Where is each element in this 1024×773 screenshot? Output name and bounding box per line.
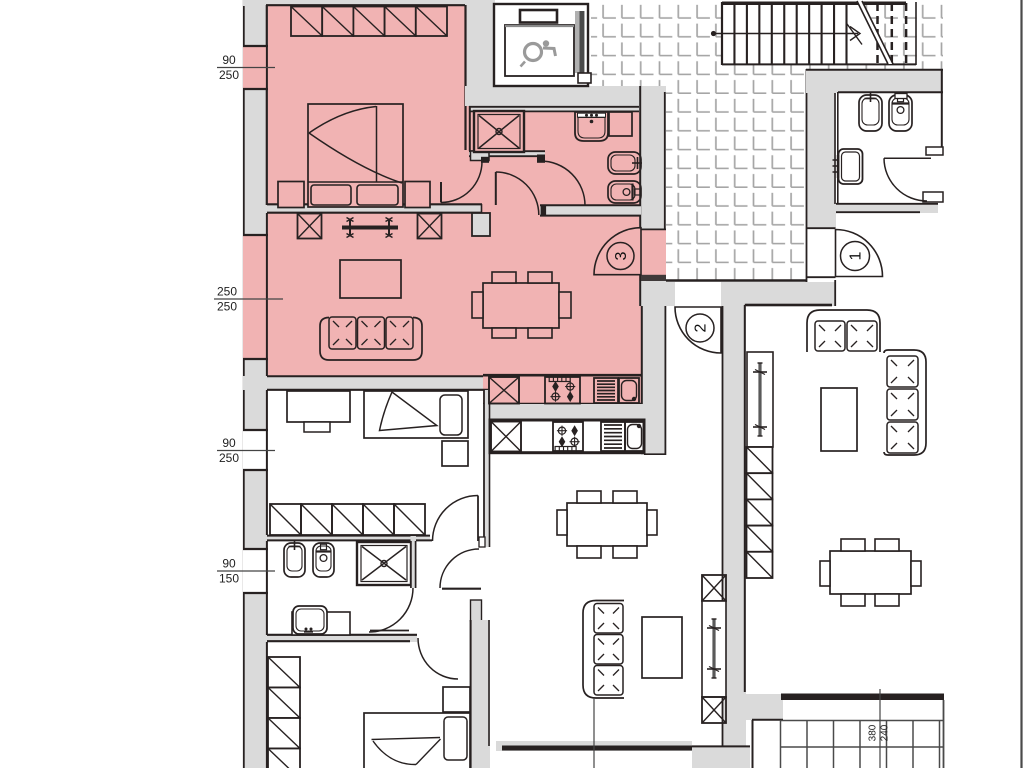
svg-text:90: 90	[222, 436, 236, 450]
svg-text:250: 250	[217, 300, 237, 314]
svg-text:2: 2	[692, 323, 709, 332]
svg-text:1: 1	[847, 251, 864, 260]
svg-text:380: 380	[868, 724, 879, 741]
svg-text:90: 90	[222, 53, 236, 67]
svg-text:240: 240	[880, 724, 891, 741]
svg-text:90: 90	[222, 557, 236, 571]
svg-text:3: 3	[613, 251, 630, 260]
svg-text:250: 250	[217, 285, 237, 299]
svg-text:250: 250	[219, 68, 239, 82]
svg-text:250: 250	[219, 451, 239, 465]
svg-text:150: 150	[219, 572, 239, 586]
